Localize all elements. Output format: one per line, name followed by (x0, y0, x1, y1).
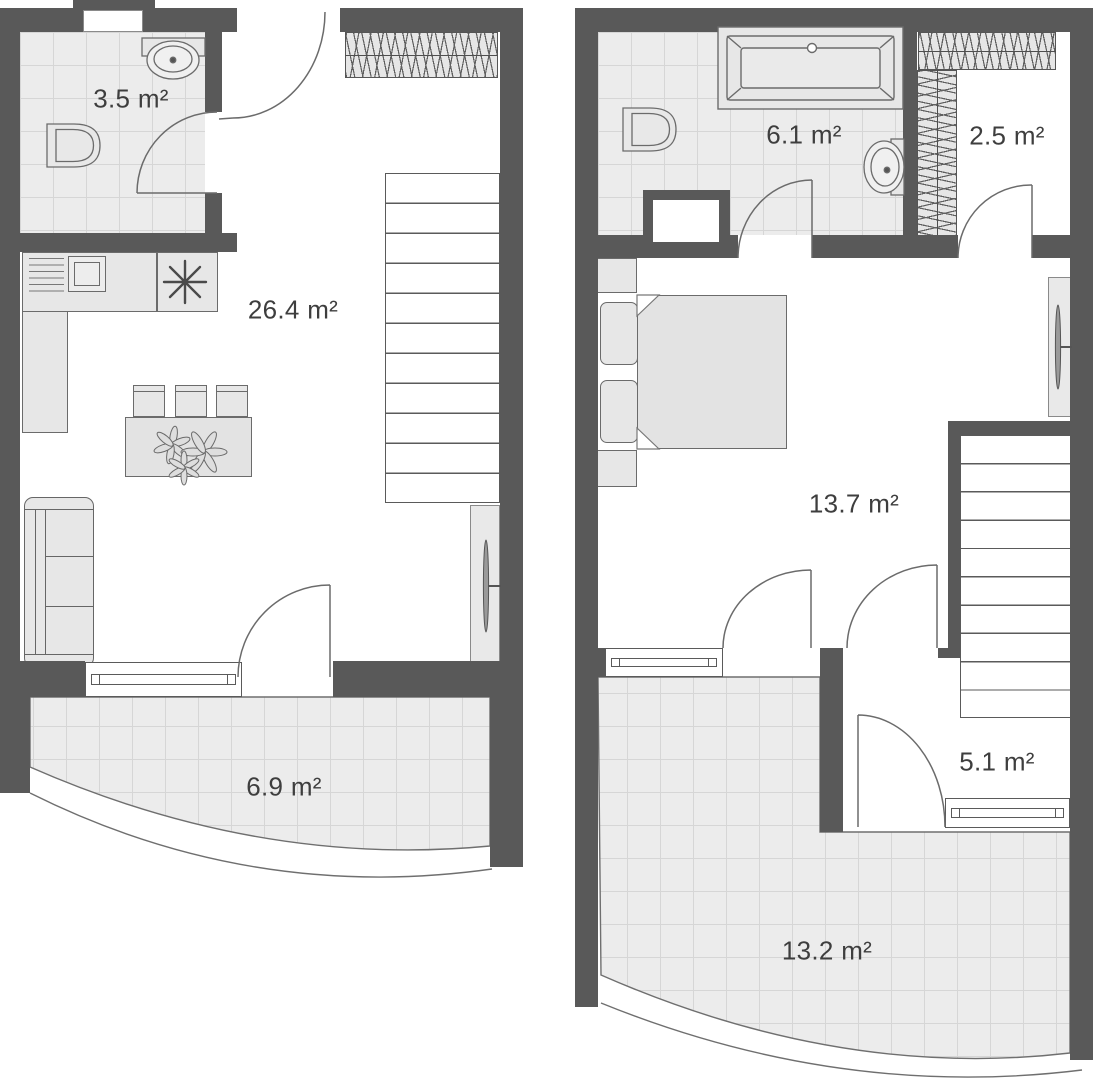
area-label-wardrobe2: 2.5 m² (969, 121, 1044, 152)
area-label-bathroom2: 6.1 m² (766, 120, 841, 151)
plant-icon (153, 426, 227, 485)
bathtub-icon (718, 27, 903, 109)
door-swing-balcony1 (238, 585, 330, 677)
door-swing-bathroom2 (738, 180, 812, 258)
radiator-icon (483, 540, 501, 632)
door-swing-hall-terrace (858, 715, 945, 827)
toilet-icon (47, 124, 100, 167)
sink-icon (142, 38, 205, 79)
door-swing-wardrobe2 (958, 185, 1032, 258)
stove-icon (164, 261, 206, 303)
door-swing-bedroom-hall (847, 565, 937, 648)
door-swing-bathroom1 (137, 112, 217, 193)
radiator-icon (1055, 305, 1072, 389)
area-label-balcony1: 6.9 m² (246, 772, 321, 803)
area-label-bathroom1: 3.5 m² (93, 84, 168, 115)
toilet-icon (623, 108, 676, 151)
ventilation-shaft-opening (653, 200, 719, 242)
area-label-living: 26.4 m² (248, 295, 338, 326)
door-swing-bedroom-terrace (723, 570, 811, 648)
area-label-terrace: 13.2 m² (782, 936, 872, 967)
door-swing-entry (219, 12, 325, 119)
fixtures-layer (0, 0, 1093, 1080)
area-label-bedroom: 13.7 m² (809, 489, 899, 520)
area-label-hall: 5.1 m² (959, 747, 1034, 778)
bed-corner-folds (637, 295, 659, 449)
sink-icon (864, 139, 904, 195)
floor-plan-canvas: 3.5 m² 26.4 m² 6.9 m² 6.1 m² 2.5 m² 13.7… (0, 0, 1093, 1080)
